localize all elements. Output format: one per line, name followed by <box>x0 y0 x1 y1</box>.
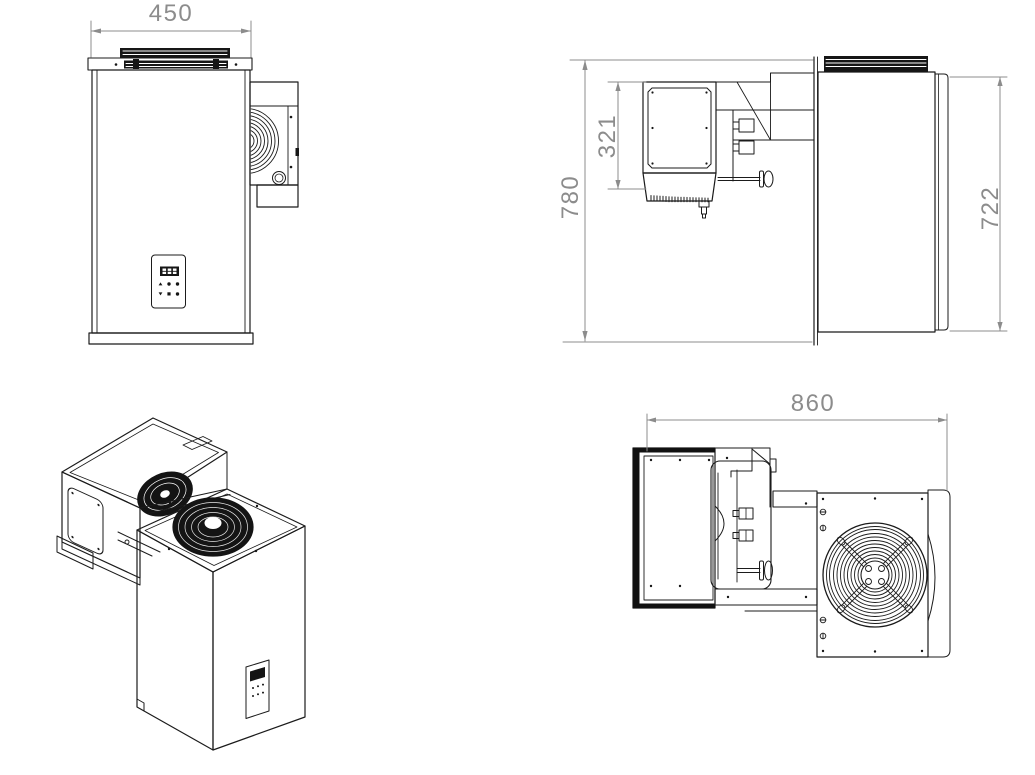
fan-guard-icon <box>823 523 927 627</box>
drain-hole <box>273 172 286 185</box>
evaporator-box-top <box>633 448 728 608</box>
axial-fan-icon <box>173 498 253 556</box>
wall-section <box>814 57 818 345</box>
control-panel <box>246 660 269 719</box>
top-grille-icon <box>824 56 928 72</box>
panel-buttons <box>159 282 180 295</box>
mounting-frame <box>716 73 814 181</box>
evaporator-box <box>643 82 716 173</box>
door-panel <box>711 461 771 589</box>
bracket-clip <box>739 119 754 132</box>
drain-fitting <box>699 201 709 218</box>
top-view <box>633 448 950 657</box>
set-button-icon <box>167 292 170 295</box>
side-panel-top <box>928 490 950 657</box>
dimension-label-overall-depth: 860 <box>791 392 836 416</box>
mounting-knob <box>718 171 773 187</box>
iso-main-unit <box>137 489 305 750</box>
condensing-body-top <box>817 490 950 657</box>
side-panel <box>935 74 948 330</box>
drawing-canvas <box>0 0 1035 775</box>
evaporator-panel <box>648 88 711 168</box>
cabinet-base <box>89 333 253 344</box>
isometric-view <box>57 418 305 750</box>
control-panel <box>152 255 186 308</box>
duct-housing <box>711 448 776 589</box>
evaporator-panel <box>68 486 103 556</box>
cabinet-body <box>92 70 250 333</box>
drip-tray <box>643 173 716 202</box>
dimension-lines <box>91 21 1007 491</box>
seven-segment-display <box>250 667 265 682</box>
technical-drawing-page: 450 780 321 722 860 <box>0 0 1035 775</box>
bracket-clip <box>739 141 754 154</box>
up-arrow-icon <box>159 282 163 285</box>
dimension-label-overall-height: 780 <box>559 175 583 220</box>
down-arrow-icon <box>159 292 163 295</box>
side-view <box>643 56 948 345</box>
condensing-body <box>818 72 935 332</box>
mounting-bars <box>715 491 817 611</box>
top-grille-icon <box>120 48 230 58</box>
front-view <box>88 48 299 344</box>
condenser-protrusion <box>214 82 300 207</box>
mounting-knob <box>737 561 773 580</box>
dimension-label-width: 450 <box>149 2 194 26</box>
dimension-label-evaporator-height: 321 <box>596 114 620 159</box>
fan-arcs-icon <box>214 109 279 174</box>
dimension-label-body-height: 722 <box>979 186 1003 231</box>
